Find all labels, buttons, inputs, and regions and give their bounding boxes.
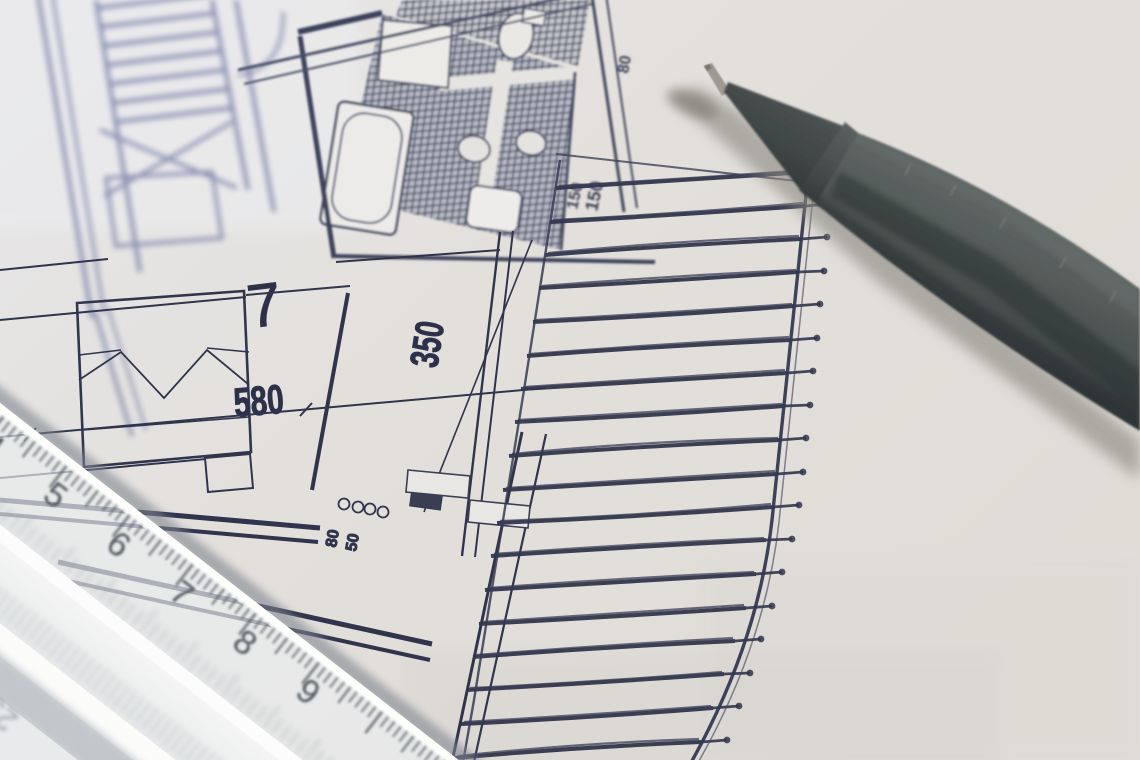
svg-text:80: 80 xyxy=(323,528,343,549)
svg-text:580: 580 xyxy=(232,376,286,426)
svg-text:350: 350 xyxy=(402,318,453,370)
svg-text:50: 50 xyxy=(343,532,363,553)
svg-text:80: 80 xyxy=(615,54,635,75)
